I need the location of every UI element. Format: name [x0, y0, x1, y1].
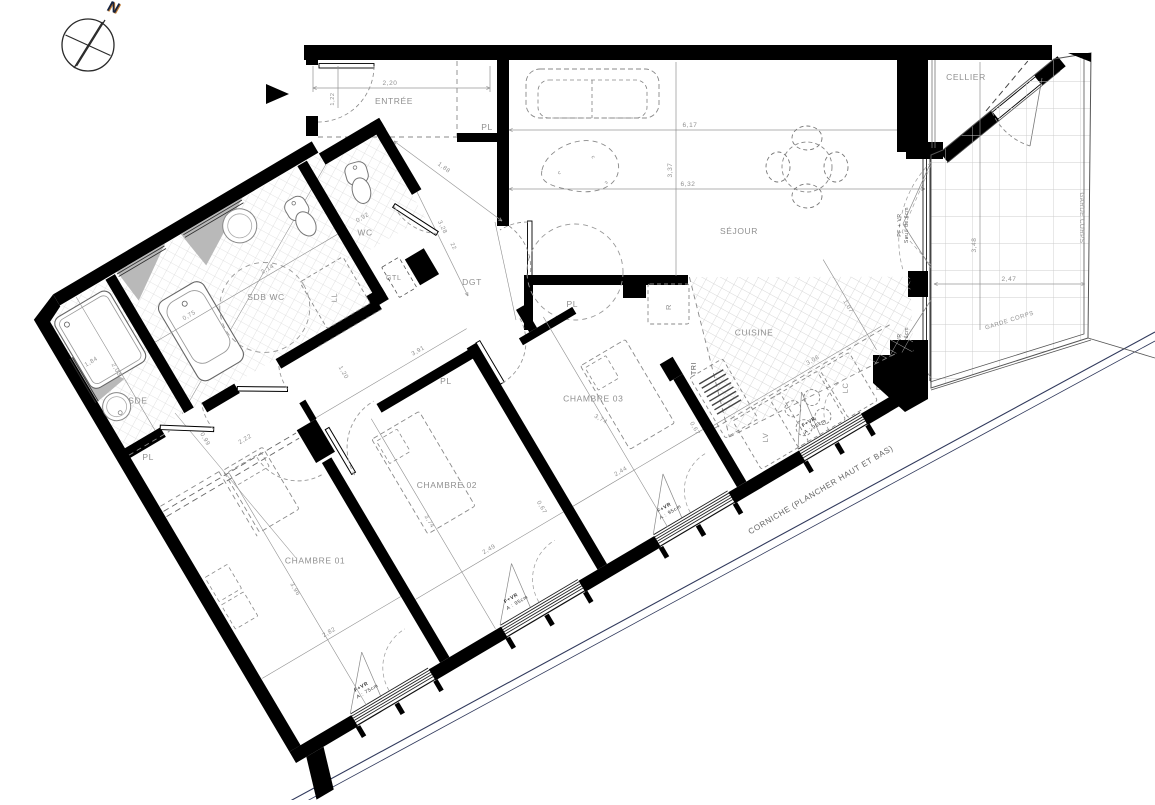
- svg-text:LC: LC: [841, 382, 850, 393]
- svg-text:CHAMBRE 01: CHAMBRE 01: [285, 555, 345, 565]
- svg-text:CHAMBRE 02: CHAMBRE 02: [417, 480, 477, 490]
- svg-text:TRI: TRI: [691, 362, 698, 375]
- svg-text:PL: PL: [440, 376, 452, 386]
- svg-text:6,17: 6,17: [682, 122, 697, 129]
- svg-text:SDE: SDE: [128, 395, 147, 405]
- svg-text:SDB WC: SDB WC: [247, 292, 285, 302]
- svg-text:DGT: DGT: [462, 277, 482, 287]
- svg-text:Seuil de 6cm: Seuil de 6cm: [904, 207, 910, 243]
- svg-text:PL: PL: [481, 122, 493, 132]
- svg-text:2,47: 2,47: [1001, 276, 1016, 283]
- svg-text:LV: LV: [761, 432, 770, 442]
- svg-text:GARDE CORPS: GARDE CORPS: [1078, 193, 1084, 244]
- svg-text:ENTRÉE: ENTRÉE: [375, 96, 413, 106]
- svg-text:1,22: 1,22: [330, 92, 336, 105]
- svg-text:PL: PL: [142, 452, 154, 462]
- svg-text:2,20: 2,20: [382, 80, 397, 87]
- svg-text:CUISINE: CUISINE: [735, 327, 774, 337]
- svg-text:R: R: [664, 304, 673, 310]
- svg-text:PL: PL: [566, 299, 578, 309]
- svg-text:SÉJOUR: SÉJOUR: [720, 226, 758, 236]
- svg-text:PF + VR: PF + VR: [897, 213, 903, 236]
- svg-text:LL: LL: [330, 293, 339, 303]
- svg-text:6,32: 6,32: [680, 181, 695, 188]
- svg-text:3,48: 3,48: [971, 237, 978, 252]
- svg-text:3,37: 3,37: [667, 162, 674, 177]
- svg-text:WC: WC: [357, 227, 372, 237]
